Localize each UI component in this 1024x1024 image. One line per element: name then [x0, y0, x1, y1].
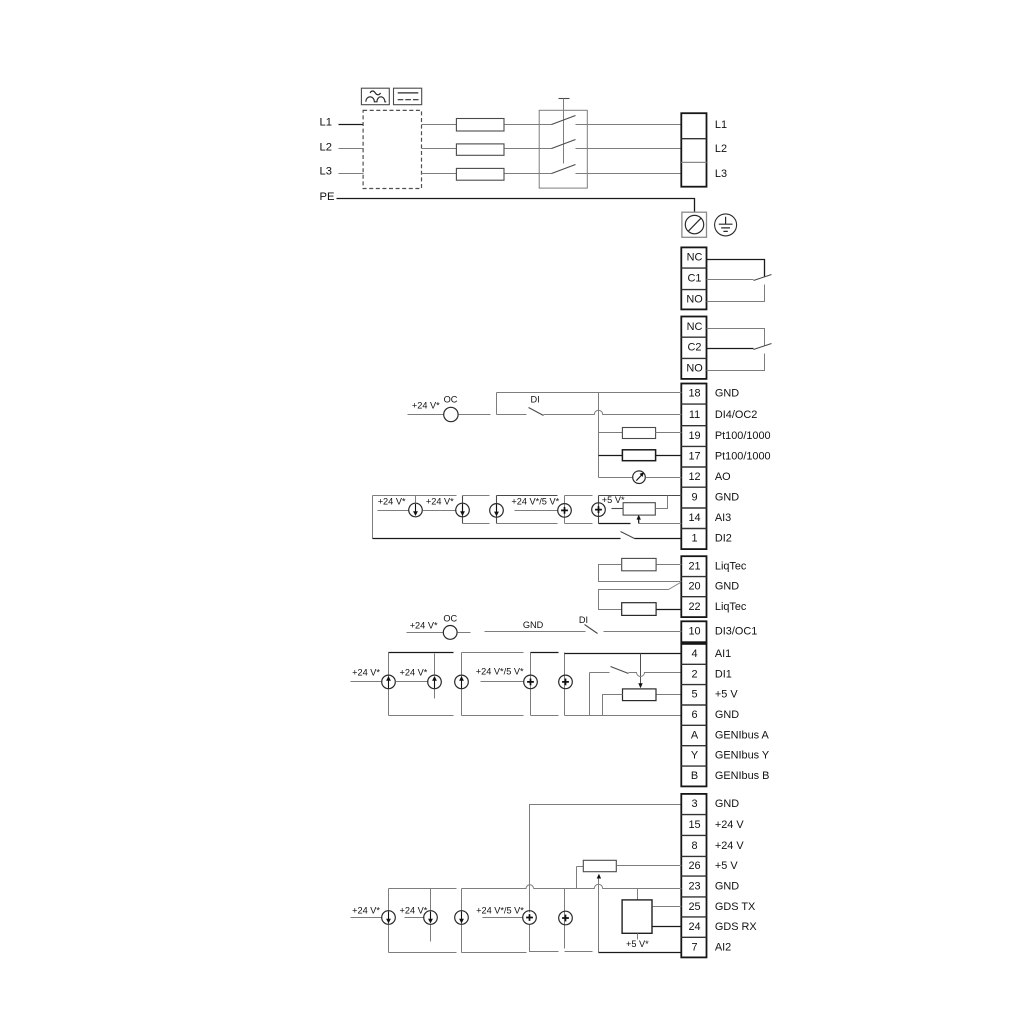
- svg-text:NO: NO: [686, 363, 702, 375]
- svg-text:9: 9: [691, 492, 697, 504]
- svg-text:+5 V*: +5 V*: [626, 939, 649, 949]
- svg-text:A: A: [691, 729, 699, 741]
- svg-text:GENIbus Y: GENIbus Y: [715, 750, 770, 762]
- svg-text:15: 15: [688, 819, 700, 831]
- svg-text:+24 V*: +24 V*: [378, 497, 406, 507]
- svg-text:LiqTec: LiqTec: [715, 601, 747, 613]
- svg-text:DI: DI: [579, 615, 588, 625]
- svg-text:C1: C1: [688, 273, 702, 285]
- svg-text:L3: L3: [320, 166, 332, 178]
- svg-text:GND: GND: [715, 798, 739, 810]
- svg-text:L1: L1: [320, 117, 332, 129]
- svg-text:L2: L2: [320, 141, 332, 153]
- svg-text:GDS TX: GDS TX: [715, 901, 756, 913]
- svg-text:+24 V*: +24 V*: [412, 401, 440, 411]
- svg-text:AI1: AI1: [715, 648, 731, 660]
- svg-text:25: 25: [688, 901, 700, 913]
- svg-text:21: 21: [688, 560, 700, 572]
- svg-text:2: 2: [691, 668, 697, 680]
- svg-text:+24 V*: +24 V*: [400, 905, 428, 915]
- svg-text:14: 14: [688, 512, 700, 524]
- svg-text:+24 V*: +24 V*: [426, 497, 454, 507]
- svg-text:11: 11: [689, 409, 700, 421]
- svg-text:GENIbus A: GENIbus A: [715, 729, 770, 741]
- svg-text:24: 24: [688, 921, 700, 933]
- svg-text:8: 8: [691, 840, 697, 852]
- svg-text:23: 23: [688, 880, 700, 892]
- svg-text:GND: GND: [715, 388, 739, 400]
- svg-text:+24 V: +24 V: [715, 819, 744, 831]
- svg-text:GDS RX: GDS RX: [715, 921, 757, 933]
- svg-text:7: 7: [691, 941, 697, 953]
- svg-text:+5 V: +5 V: [715, 689, 738, 701]
- svg-text:DI3/OC1: DI3/OC1: [715, 625, 757, 637]
- svg-text:+24 V*/5 V*: +24 V*/5 V*: [511, 497, 559, 507]
- svg-text:+5 V: +5 V: [715, 860, 738, 872]
- svg-text:AI3: AI3: [715, 512, 731, 524]
- svg-text:10: 10: [688, 625, 700, 637]
- svg-text:26: 26: [688, 860, 700, 872]
- svg-text:+24 V*: +24 V*: [410, 621, 438, 631]
- svg-text:DI: DI: [531, 394, 540, 404]
- svg-text:22: 22: [688, 601, 700, 613]
- svg-text:1: 1: [691, 533, 697, 545]
- svg-text:12: 12: [688, 471, 700, 483]
- svg-text:DI1: DI1: [715, 668, 732, 680]
- svg-text:Pt100/1000: Pt100/1000: [715, 430, 771, 442]
- svg-text:GND: GND: [715, 492, 739, 504]
- svg-text:17: 17: [688, 451, 700, 463]
- svg-text:AI2: AI2: [715, 941, 731, 953]
- svg-text:+24 V*: +24 V*: [352, 668, 380, 678]
- svg-text:LiqTec: LiqTec: [715, 560, 747, 572]
- svg-text:GND: GND: [715, 880, 739, 892]
- svg-text:NC: NC: [687, 252, 703, 264]
- svg-text:GND: GND: [523, 620, 544, 630]
- svg-text:B: B: [691, 770, 698, 782]
- svg-text:6: 6: [691, 709, 697, 721]
- svg-text:NC: NC: [687, 321, 703, 333]
- svg-text:+24 V: +24 V: [715, 840, 744, 852]
- svg-text:5: 5: [691, 689, 697, 701]
- svg-text:+24 V*/5 V*: +24 V*/5 V*: [476, 666, 524, 676]
- svg-text:3: 3: [691, 798, 697, 810]
- svg-text:Y: Y: [691, 750, 699, 762]
- svg-text:GND: GND: [715, 581, 739, 593]
- svg-text:NO: NO: [686, 293, 702, 305]
- svg-text:+5 V*: +5 V*: [602, 495, 625, 505]
- svg-text:OC: OC: [443, 613, 457, 623]
- svg-text:19: 19: [688, 430, 700, 442]
- svg-text:20: 20: [688, 581, 700, 593]
- svg-text:GENIbus B: GENIbus B: [715, 770, 769, 782]
- svg-text:GND: GND: [715, 709, 739, 721]
- svg-text:+24 V*: +24 V*: [352, 905, 380, 915]
- svg-text:18: 18: [688, 388, 700, 400]
- svg-text:L2: L2: [715, 143, 727, 155]
- svg-text:+24 V*: +24 V*: [400, 668, 428, 678]
- svg-text:L1: L1: [715, 119, 727, 131]
- svg-text:4: 4: [691, 648, 697, 660]
- svg-text:C2: C2: [688, 342, 702, 354]
- svg-text:OC: OC: [444, 394, 458, 404]
- svg-text:PE: PE: [320, 191, 335, 203]
- svg-text:+24 V*/5 V*: +24 V*/5 V*: [476, 905, 524, 915]
- svg-text:AO: AO: [715, 471, 731, 483]
- svg-text:L3: L3: [715, 168, 727, 180]
- svg-text:Pt100/1000: Pt100/1000: [715, 451, 771, 463]
- svg-text:DI4/OC2: DI4/OC2: [715, 409, 757, 421]
- svg-text:DI2: DI2: [715, 533, 732, 545]
